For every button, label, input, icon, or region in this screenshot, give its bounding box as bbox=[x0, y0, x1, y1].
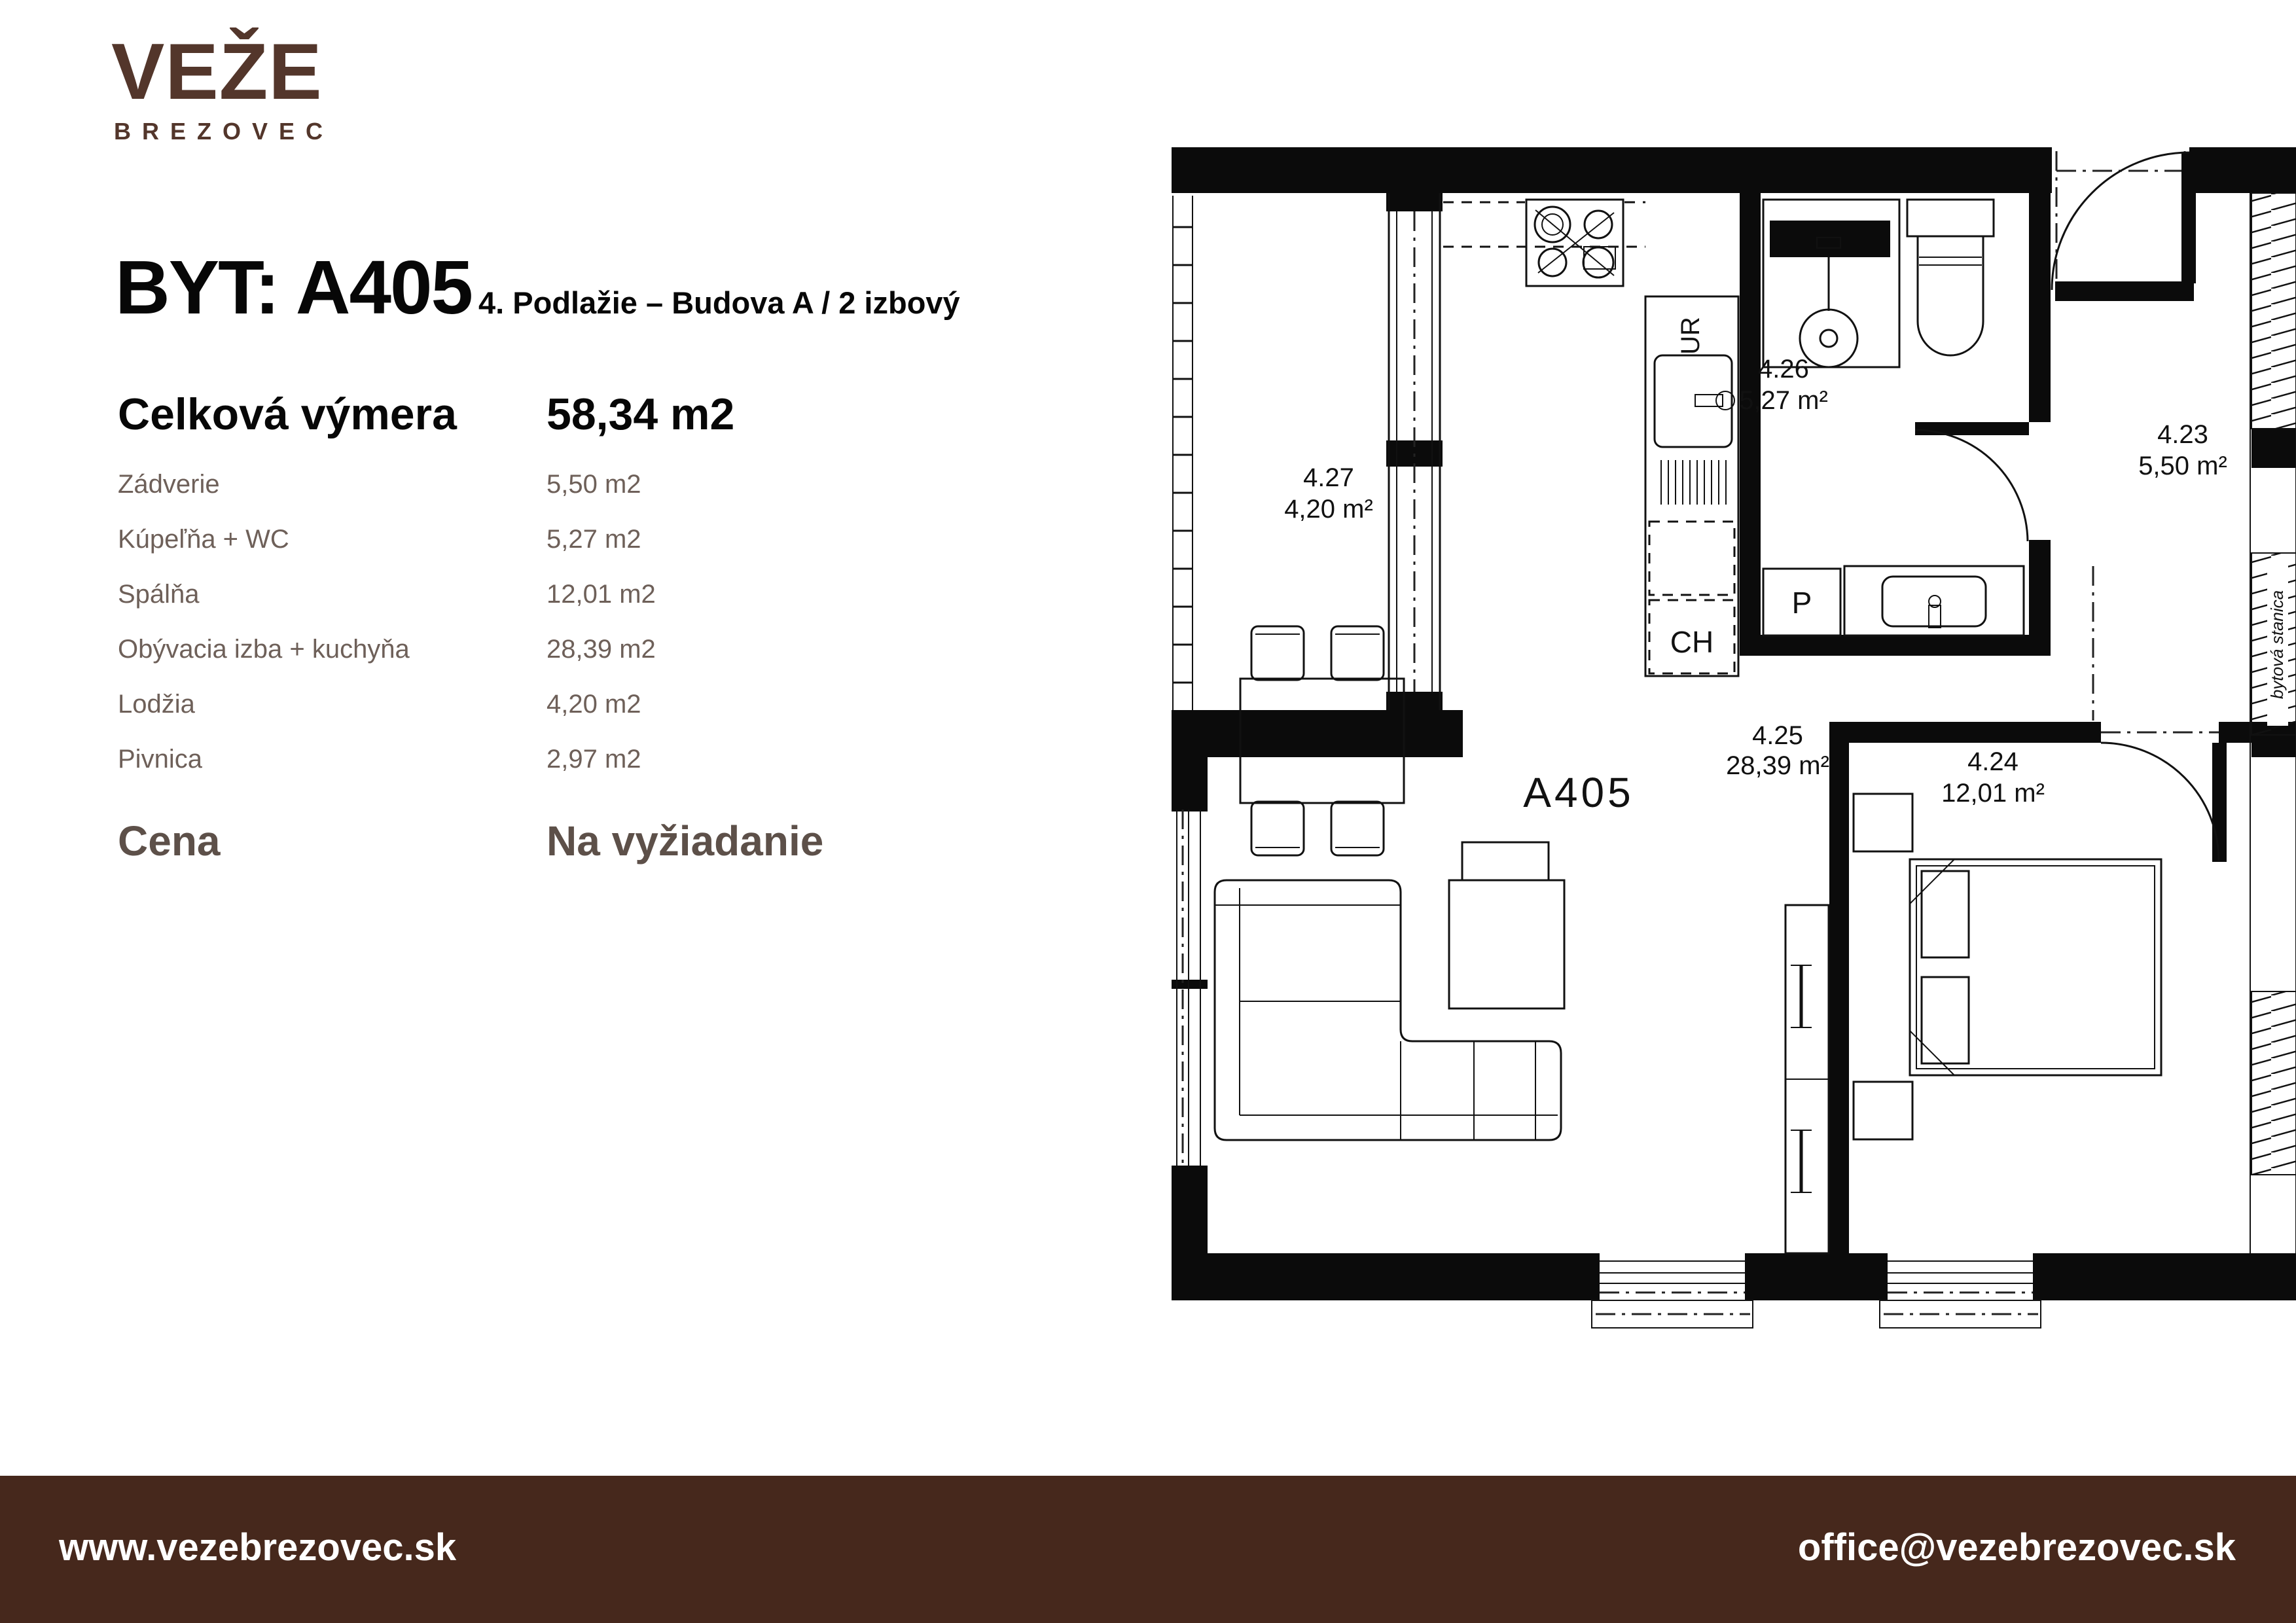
total-area-label: Celková výmera bbox=[118, 389, 457, 440]
total-area-row: Celková výmera 58,34 m2 bbox=[118, 389, 1067, 440]
room-list-row: Lodžia 4,20 m2 bbox=[118, 690, 1067, 745]
bedroom-door-icon bbox=[2101, 732, 2227, 862]
room-area: 5,50 m2 bbox=[547, 470, 641, 499]
total-area-value: 58,34 m2 bbox=[547, 389, 734, 440]
fridge-marker-label: CH bbox=[1670, 625, 1713, 659]
loggia-railing-icon bbox=[1173, 196, 1193, 710]
room-area-label: 12,01 m² bbox=[1941, 779, 2045, 808]
kitchen-sink-icon bbox=[1655, 355, 1734, 505]
south-window-icon bbox=[1592, 1253, 1753, 1328]
bathroom-vanity-icon bbox=[1844, 566, 2024, 635]
footer-website-link[interactable]: www.vezebrezovec.sk bbox=[59, 1525, 456, 1569]
shaft-label: bytová stanica bbox=[2267, 590, 2287, 699]
brand-logo: VEŽE BREZOVEC bbox=[111, 31, 334, 145]
shower-icon bbox=[1763, 200, 1899, 367]
apartment-subtitle: 4. Podlažie – Budova A / 2 izbový bbox=[478, 285, 960, 321]
bathroom-door-icon bbox=[1915, 422, 2029, 541]
south-window-icon bbox=[1880, 1253, 2041, 1328]
apartment-id-title: BYT: A405 bbox=[115, 243, 472, 331]
room-id-label: 4.27 bbox=[1303, 463, 1354, 492]
room-id-label: 4.26 bbox=[1758, 355, 1809, 383]
room-name: Kúpeľňa + WC bbox=[118, 525, 289, 554]
room-id-label: 4.24 bbox=[1967, 747, 2018, 776]
bed-icon bbox=[1854, 794, 2161, 1139]
room-list-row: Obývacia izba + kuchyňa 28,39 m2 bbox=[118, 635, 1067, 690]
price-value: Na vyžiadanie bbox=[547, 817, 823, 865]
room-name: Zádverie bbox=[118, 470, 220, 499]
unit-number-label: A405 bbox=[1523, 769, 1634, 816]
room-area-label: 4,20 m² bbox=[1284, 495, 1373, 524]
brand-logo-wordmark: VEŽE bbox=[111, 31, 334, 111]
sink-marker-label: UR bbox=[1676, 317, 1705, 355]
floor-plan: 4.27 4,20 m² 4.26 5,27 m² 4.23 5,50 m² 4… bbox=[1172, 147, 2296, 1335]
room-id-label: 4.25 bbox=[1752, 721, 1803, 750]
room-list-row: Pivnica 2,97 m2 bbox=[118, 745, 1067, 800]
price-label: Cena bbox=[118, 817, 221, 865]
footer-email-link[interactable]: office@vezebrezovec.sk bbox=[1798, 1525, 2236, 1569]
room-list-row: Spálňa 12,01 m2 bbox=[118, 580, 1067, 635]
room-area: 12,01 m2 bbox=[547, 580, 656, 609]
room-area-label: 28,39 m² bbox=[1726, 751, 1829, 780]
sofa-icon bbox=[1215, 880, 1561, 1140]
room-name: Obývacia izba + kuchyňa bbox=[118, 635, 410, 664]
apartment-datasheet: { "brand": { "logo_main": "VEŽE", "logo_… bbox=[0, 0, 2296, 1623]
room-name: Pivnica bbox=[118, 745, 202, 774]
washer-marker-label: P bbox=[1792, 586, 1812, 620]
room-name: Spálňa bbox=[118, 580, 200, 609]
price-row: Cena Na vyžiadanie bbox=[118, 817, 1100, 865]
room-area: 28,39 m2 bbox=[547, 635, 656, 664]
room-area: 5,27 m2 bbox=[547, 525, 641, 554]
toilet-icon bbox=[1907, 200, 1994, 355]
brand-logo-subtitle: BREZOVEC bbox=[114, 118, 334, 145]
entry-door-icon bbox=[2052, 151, 2196, 290]
room-area: 4,20 m2 bbox=[547, 690, 641, 719]
stove-icon bbox=[1526, 200, 1623, 286]
room-id-label: 4.23 bbox=[2157, 420, 2208, 449]
room-area: 2,97 m2 bbox=[547, 745, 641, 774]
apartment-title-row: BYT: A405 4. Podlažie – Budova A / 2 izb… bbox=[115, 243, 960, 331]
armchair-icon bbox=[1449, 842, 1564, 1008]
wardrobe-icon bbox=[1785, 905, 1829, 1253]
walls bbox=[1172, 147, 2296, 1300]
room-name: Lodžia bbox=[118, 690, 195, 719]
room-area-label: 5,50 m² bbox=[2138, 452, 2227, 480]
footer-bar: www.vezebrezovec.sk office@vezebrezovec.… bbox=[0, 1476, 2296, 1623]
room-list-row: Kúpeľňa + WC 5,27 m2 bbox=[118, 525, 1067, 580]
kitchen-counter bbox=[1443, 202, 1738, 676]
room-list-row: Zádverie 5,50 m2 bbox=[118, 470, 1067, 525]
room-area-label: 5,27 m² bbox=[1739, 386, 1828, 415]
